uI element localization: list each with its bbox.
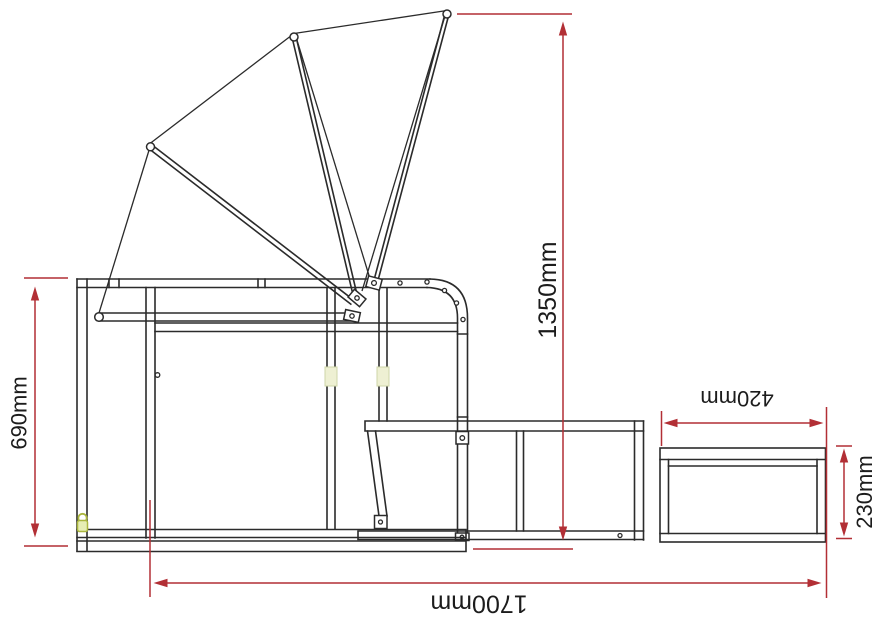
dim-label-overall-length: 1700mm <box>430 590 527 618</box>
drawing-page: 690mm 1350mm 420mm 230mm 1700mm <box>0 0 880 624</box>
dim-label-side-table-width: 420mm <box>700 386 773 411</box>
slant-leg <box>368 431 388 516</box>
dim-label-side-table-height: 230mm <box>852 455 877 528</box>
padlock-icon <box>78 514 88 532</box>
dimension-labels: 690mm 1350mm 420mm 230mm 1700mm <box>7 241 878 617</box>
canopy <box>99 10 451 322</box>
bar-end-cap <box>95 313 104 322</box>
canopy-poles <box>147 10 452 304</box>
pullout-table <box>358 421 644 540</box>
technical-drawing: 690mm 1350mm 420mm 230mm 1700mm <box>0 0 880 624</box>
bench-frame <box>77 279 469 552</box>
dim-label-bench-height: 690mm <box>7 376 32 449</box>
dimension-graphics <box>24 14 852 598</box>
slider-clip <box>325 367 337 386</box>
side-table <box>660 448 826 542</box>
canopy-fabric <box>99 11 447 314</box>
slider-clip <box>377 367 389 386</box>
pole-cap <box>290 33 298 41</box>
pole-cap <box>443 10 451 18</box>
dim-label-overall-height: 1350mm <box>534 241 562 338</box>
pole-cap <box>147 143 155 151</box>
